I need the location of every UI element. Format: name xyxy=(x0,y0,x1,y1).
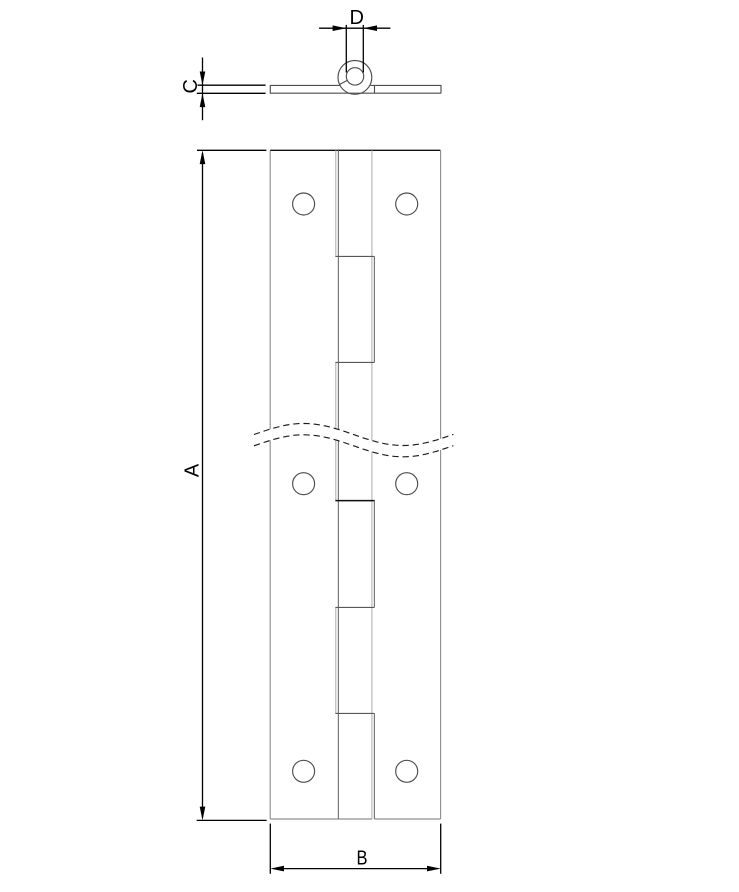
svg-text:A: A xyxy=(181,463,203,477)
svg-text:C: C xyxy=(180,79,202,93)
svg-text:B: B xyxy=(357,847,368,869)
svg-text:D: D xyxy=(349,7,363,29)
